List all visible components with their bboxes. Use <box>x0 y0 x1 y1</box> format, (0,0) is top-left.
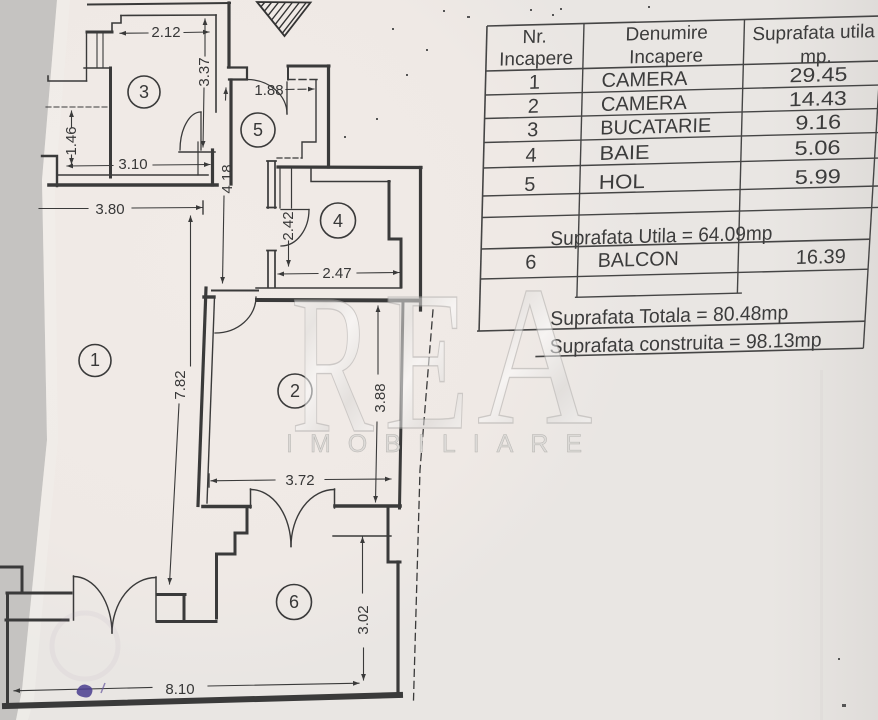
svg-text:Suprafata utila: Suprafata utila <box>752 21 875 45</box>
svg-text:5.99: 5.99 <box>795 166 842 189</box>
svg-text:2.42: 2.42 <box>280 211 297 240</box>
svg-text:6: 6 <box>289 592 299 612</box>
svg-text:3.02: 3.02 <box>355 605 372 634</box>
svg-text:16.39: 16.39 <box>795 246 846 269</box>
svg-text:5: 5 <box>253 120 263 140</box>
svg-text:Incapere: Incapere <box>629 46 703 69</box>
svg-text:1.88: 1.88 <box>254 82 283 99</box>
svg-text:BUCATARIE: BUCATARIE <box>600 115 712 140</box>
svg-text:HOL: HOL <box>599 171 646 194</box>
svg-text:IMOBILIARE: IMOBILIARE <box>286 430 599 458</box>
svg-text:8.10: 8.10 <box>165 681 194 698</box>
svg-text:3.80: 3.80 <box>95 201 124 218</box>
svg-text:5: 5 <box>524 174 536 196</box>
svg-text:Nr.: Nr. <box>522 26 547 48</box>
svg-text:Incapere: Incapere <box>499 48 573 71</box>
svg-text:3: 3 <box>139 82 149 102</box>
svg-text:CAMERA: CAMERA <box>601 92 688 116</box>
svg-text:3.72: 3.72 <box>285 472 314 489</box>
svg-text:BAIE: BAIE <box>599 142 650 165</box>
svg-text:4: 4 <box>333 211 343 231</box>
svg-text:5.06: 5.06 <box>794 137 841 160</box>
svg-text:14.43: 14.43 <box>789 88 848 111</box>
svg-text:BALCON: BALCON <box>598 248 680 272</box>
svg-text:1: 1 <box>529 72 541 94</box>
svg-text:7.82: 7.82 <box>172 370 189 399</box>
svg-text:Denumire: Denumire <box>625 22 708 45</box>
svg-text:3.10: 3.10 <box>118 156 147 173</box>
svg-text:29.45: 29.45 <box>789 64 848 87</box>
svg-text:4.18: 4.18 <box>219 164 236 193</box>
svg-text:3: 3 <box>527 119 539 141</box>
svg-text:1: 1 <box>90 350 100 370</box>
svg-text:2: 2 <box>528 96 540 118</box>
svg-text:2.12: 2.12 <box>151 24 180 41</box>
svg-text:CAMERA: CAMERA <box>601 68 688 92</box>
svg-text:1.46: 1.46 <box>63 126 80 155</box>
svg-text:3.37: 3.37 <box>196 57 213 86</box>
svg-text:9.16: 9.16 <box>795 111 842 134</box>
svg-text:4: 4 <box>525 145 537 167</box>
